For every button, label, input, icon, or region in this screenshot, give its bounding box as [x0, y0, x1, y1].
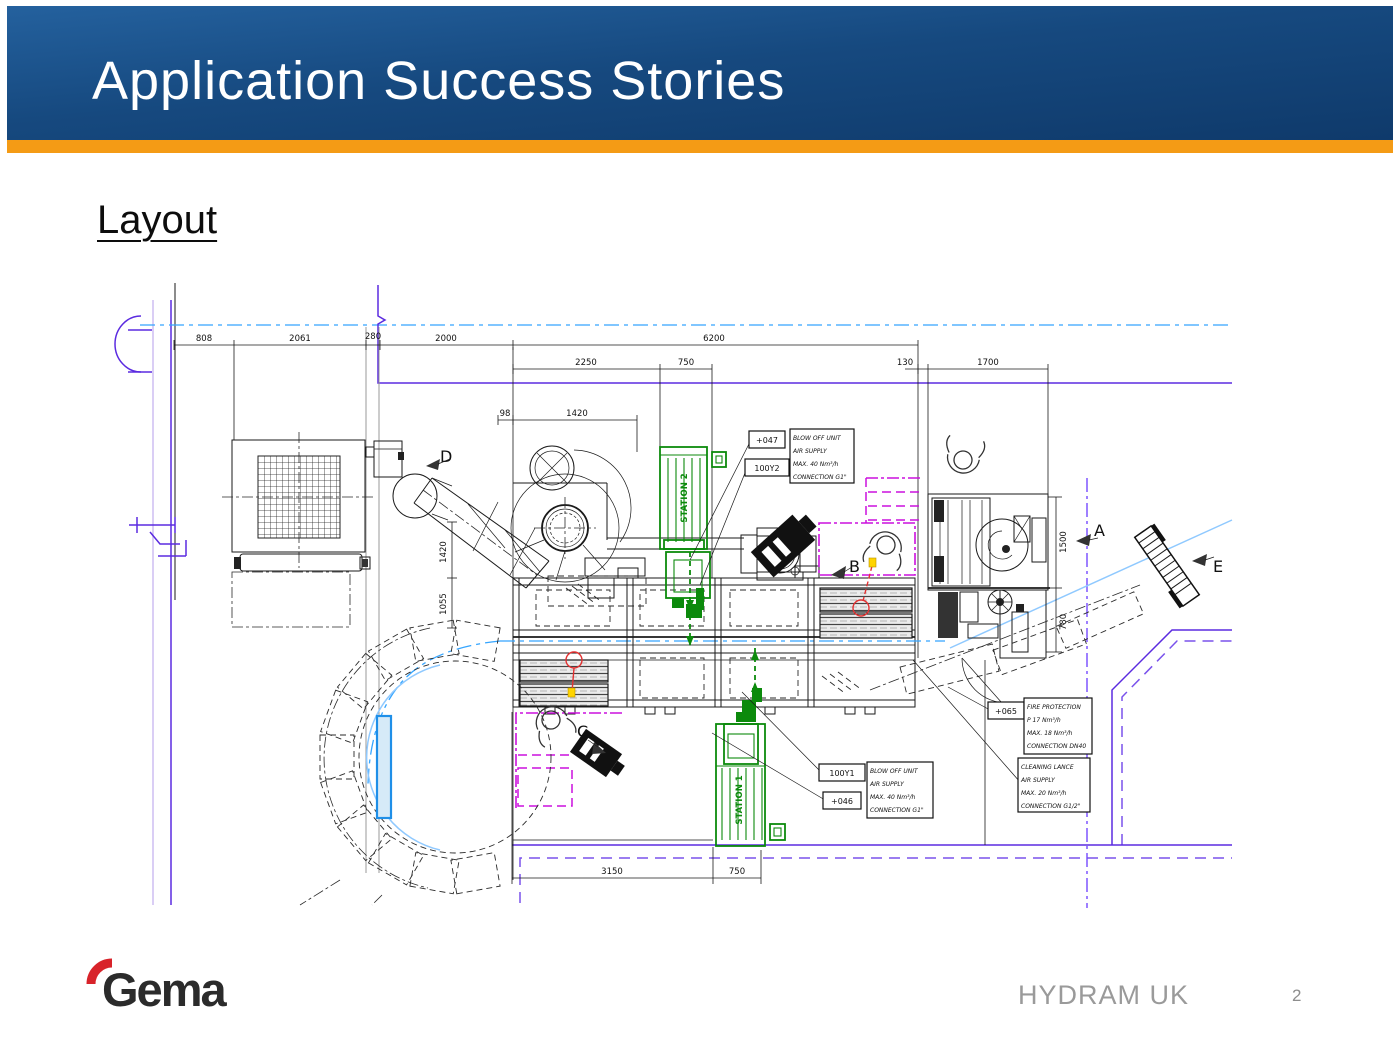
svg-text:1055: 1055	[439, 593, 449, 615]
svg-text:A: A	[1094, 521, 1105, 540]
svg-text:MAX. 40 Nm³/h: MAX. 40 Nm³/h	[870, 794, 916, 801]
svg-text:AIR SUPPLY: AIR SUPPLY	[869, 781, 905, 788]
svg-text:MAX. 20 Nm³/h: MAX. 20 Nm³/h	[1021, 790, 1067, 797]
svg-text:AIR SUPPLY: AIR SUPPLY	[792, 448, 828, 455]
operator-powder-center	[942, 435, 986, 476]
footer-client-name: HYDRAM UK	[1018, 980, 1189, 1011]
svg-text:CONNECTION G1/2": CONNECTION G1/2"	[1021, 803, 1081, 810]
svg-text:P 17 Nm³/h: P 17 Nm³/h	[1027, 717, 1061, 724]
svg-text:+046: +046	[831, 797, 853, 806]
conveyor-line	[368, 567, 945, 784]
page-number: 2	[1292, 986, 1301, 1006]
station-2: STATION 2	[660, 447, 726, 646]
svg-text:MAX. 18 Nm³/h: MAX. 18 Nm³/h	[1027, 730, 1073, 737]
svg-text:MAX. 40 Nm³/h: MAX. 40 Nm³/h	[793, 461, 839, 468]
svg-text:3150: 3150	[601, 867, 623, 877]
svg-text:STATION 1: STATION 1	[735, 775, 745, 824]
svg-text:98: 98	[500, 409, 511, 419]
svg-text:AIR SUPPLY: AIR SUPPLY	[1020, 777, 1056, 784]
svg-text:CONNECTION G1": CONNECTION G1"	[870, 807, 924, 814]
building-outline	[115, 283, 1232, 908]
callout-fire-protection: +065 FIRE PROTECTION P 17 Nm³/h MAX. 18 …	[913, 660, 1092, 812]
svg-text:100Y2: 100Y2	[754, 464, 779, 473]
svg-text:750: 750	[678, 358, 694, 368]
svg-text:CONNECTION DN40: CONNECTION DN40	[1027, 743, 1086, 750]
svg-text:1500: 1500	[1059, 531, 1069, 553]
svg-text:2061: 2061	[289, 334, 311, 344]
highlighted-carrier	[377, 716, 391, 818]
svg-text:2250: 2250	[575, 358, 597, 368]
svg-text:808: 808	[196, 334, 212, 344]
svg-text:6200: 6200	[703, 334, 725, 344]
svg-text:STATION 2: STATION 2	[680, 473, 690, 522]
spray-gun-b	[751, 508, 823, 577]
svg-text:D: D	[440, 447, 452, 466]
gema-logo: Gema	[86, 956, 256, 1026]
svg-text:+047: +047	[756, 436, 778, 445]
svg-text:280: 280	[365, 332, 381, 342]
svg-text:130: 130	[897, 358, 913, 368]
svg-text:1420: 1420	[439, 541, 449, 563]
svg-text:C: C	[577, 722, 588, 741]
svg-text:2000: 2000	[435, 334, 457, 344]
svg-text:BLOW OFF UNIT: BLOW OFF UNIT	[870, 768, 919, 775]
after-filter-unit	[222, 432, 404, 627]
svg-text:750: 750	[729, 867, 745, 877]
svg-text:1420: 1420	[566, 409, 588, 419]
svg-text:B: B	[849, 557, 860, 576]
safety-zones	[516, 478, 920, 808]
station-1: STATION 1	[716, 648, 785, 846]
svg-text:CONNECTION G1": CONNECTION G1"	[793, 474, 847, 481]
svg-text:+065: +065	[995, 707, 1017, 716]
svg-text:100Y1: 100Y1	[829, 769, 854, 778]
gema-logo-text: Gema	[102, 962, 225, 1017]
svg-text:FIRE PROTECTION: FIRE PROTECTION	[1027, 704, 1081, 711]
svg-text:BLOW OFF UNIT: BLOW OFF UNIT	[793, 435, 842, 442]
layout-drawing: 808 2061 280 2000 6200 2250 750 130 1700…	[0, 0, 1400, 1050]
powder-center	[928, 494, 1050, 712]
svg-text:1700: 1700	[977, 358, 999, 368]
dimension-annotations: 808 2061 280 2000 6200 2250 750 130 1700…	[174, 332, 1069, 884]
cooling-section	[1131, 524, 1202, 609]
svg-text:E: E	[1213, 557, 1223, 576]
svg-text:CLEANING LANCE: CLEANING LANCE	[1021, 764, 1074, 771]
